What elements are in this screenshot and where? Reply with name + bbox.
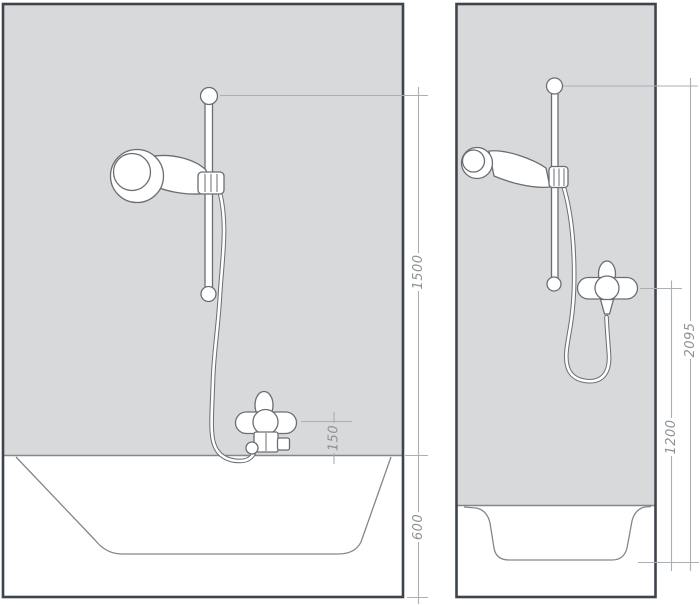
left-figure: [3, 4, 403, 597]
shower-rail-bar: [205, 96, 213, 294]
mixer-knob: [253, 410, 278, 435]
hose-connection-fitting: [246, 442, 258, 454]
dimension-label-150: 150: [327, 425, 342, 451]
dimension-label-600: 600: [411, 514, 426, 540]
hand-shower-face: [463, 150, 485, 172]
dimension-label-1500: 1500: [411, 254, 426, 289]
bath-wall-panel: [4, 5, 402, 456]
right-figure: [457, 4, 656, 597]
shower-rail-bottom-cap: [201, 287, 216, 302]
installation-diagram: 1500 150 600: [0, 0, 700, 605]
mixer-knob: [595, 276, 619, 300]
shower-rail-top-cap: [201, 88, 218, 105]
dimension-label-1200: 1200: [664, 419, 679, 454]
shower-rail-top-cap: [547, 78, 563, 94]
hand-shower-face: [114, 154, 151, 191]
dimension-label-2095: 2095: [683, 322, 698, 357]
mixer-side-nut: [278, 438, 290, 450]
shower-rail-bottom-cap: [547, 277, 561, 291]
